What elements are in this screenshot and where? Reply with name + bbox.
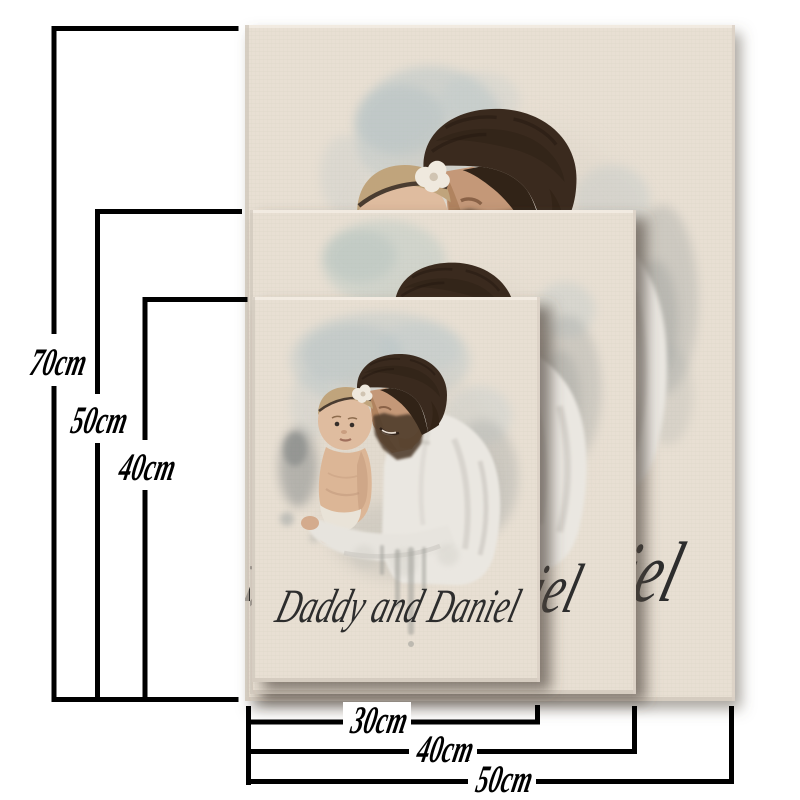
svg-text:40cm: 40cm <box>115 446 180 489</box>
svg-text:50cm: 50cm <box>67 399 132 442</box>
svg-text:30cm: 30cm <box>347 699 412 742</box>
svg-text:Daddy and Daniel: Daddy and Daniel <box>269 580 526 633</box>
svg-text:70cm: 70cm <box>26 341 91 384</box>
svg-text:50cm: 50cm <box>472 758 537 800</box>
